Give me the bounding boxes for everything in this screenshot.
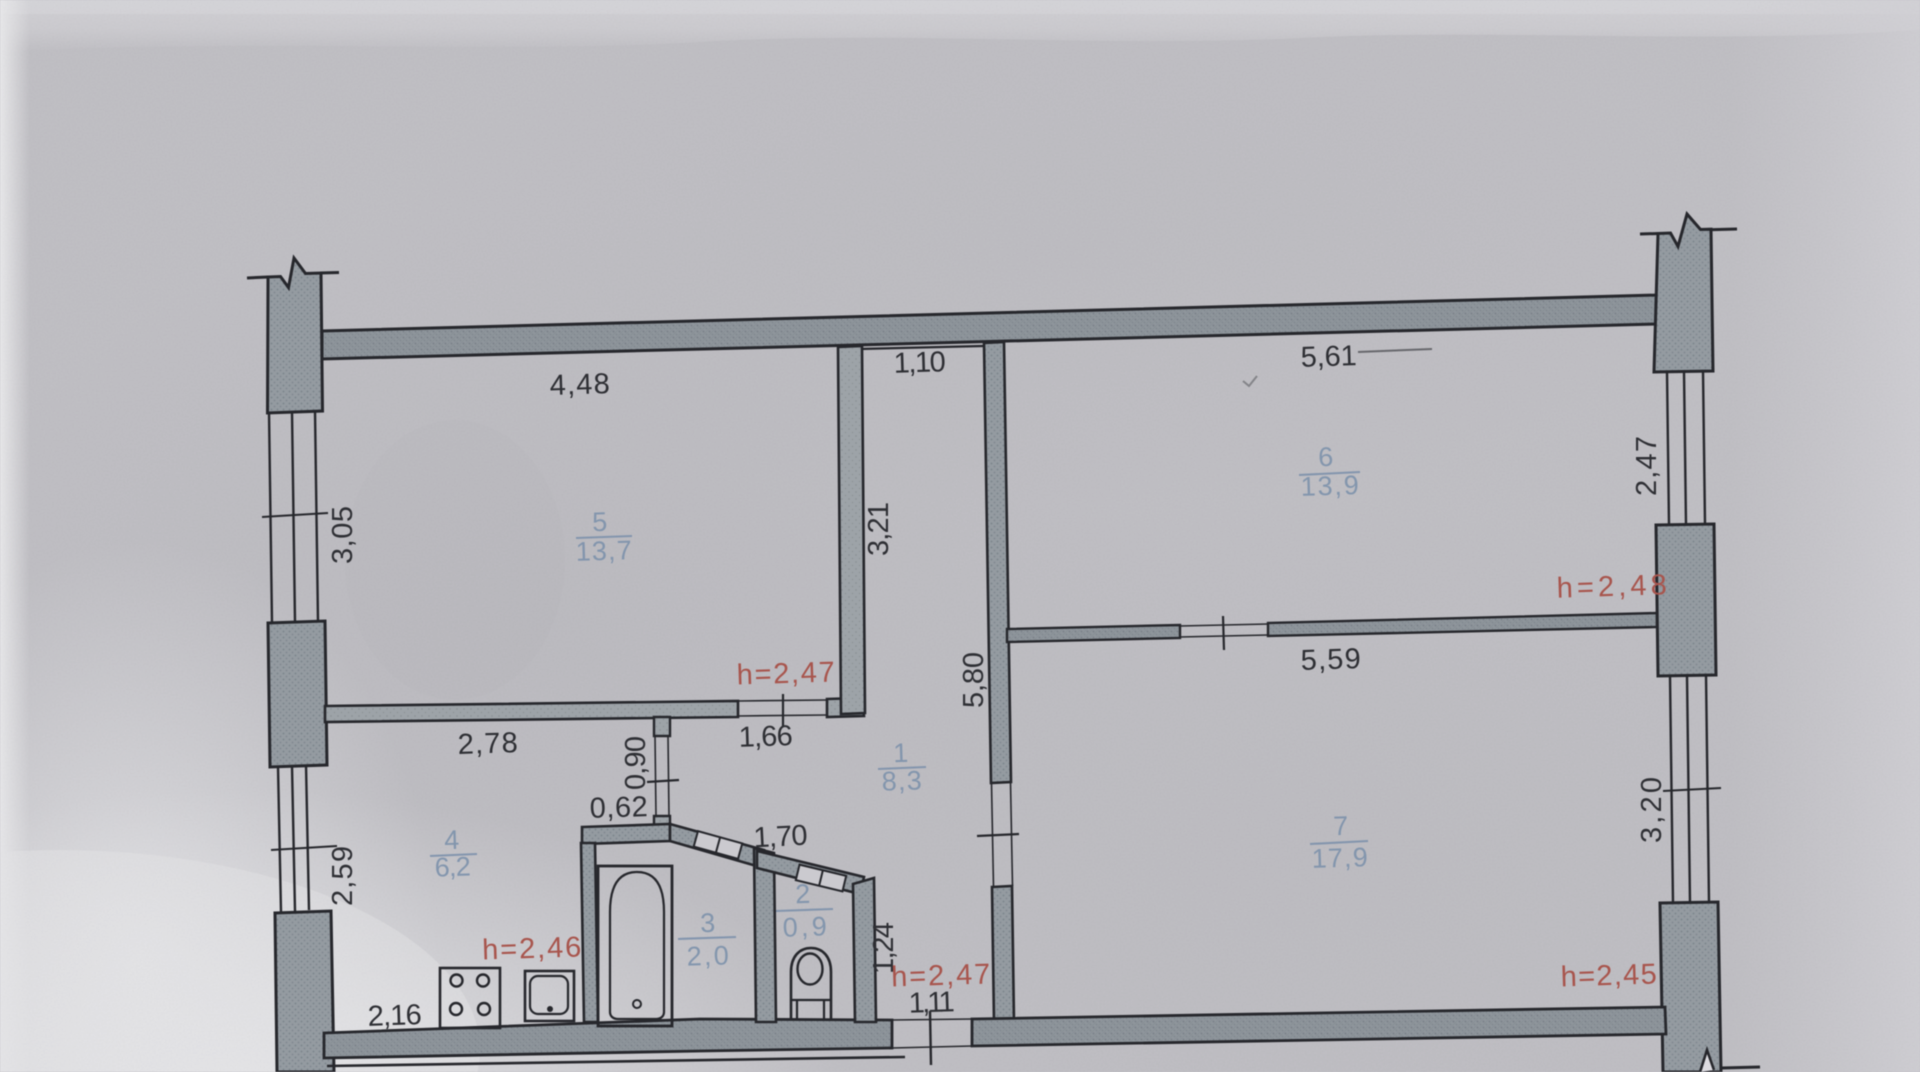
svg-text:2: 2 (795, 879, 811, 909)
svg-text:4: 4 (444, 825, 460, 855)
svg-text:3,05: 3,05 (327, 506, 359, 564)
svg-text:2,59: 2,59 (327, 846, 359, 906)
svg-text:0,62: 0,62 (589, 791, 648, 825)
svg-text:1,70: 1,70 (753, 820, 809, 855)
svg-text:2,0: 2,0 (686, 940, 729, 971)
svg-text:1: 1 (893, 738, 909, 768)
svg-text:5,80: 5,80 (958, 652, 990, 708)
svg-text:1,66: 1,66 (738, 720, 793, 754)
svg-text:4,48: 4,48 (549, 368, 610, 402)
svg-text:3: 3 (700, 908, 716, 938)
svg-text:h=2,46: h=2,46 (482, 931, 582, 966)
svg-text:2,47: 2,47 (1631, 436, 1663, 496)
svg-text:3,20: 3,20 (1636, 777, 1668, 843)
svg-text:0,9: 0,9 (782, 911, 827, 942)
svg-text:13,7: 13,7 (575, 535, 632, 567)
svg-text:1,10: 1,10 (893, 346, 946, 380)
svg-text:17,9: 17,9 (1311, 842, 1368, 874)
svg-text:5,61: 5,61 (1300, 340, 1357, 374)
svg-text:h=2,47: h=2,47 (891, 958, 991, 993)
svg-text:2,16: 2,16 (367, 999, 422, 1033)
svg-text:6: 6 (1318, 442, 1334, 472)
svg-text:2,78: 2,78 (457, 727, 518, 761)
svg-text:3,21: 3,21 (863, 502, 895, 556)
svg-text:5: 5 (592, 507, 608, 537)
svg-text:0,90: 0,90 (620, 736, 652, 790)
svg-text:h=2,45: h=2,45 (1560, 959, 1657, 994)
svg-text:7: 7 (1333, 811, 1349, 841)
svg-text:5,59: 5,59 (1300, 643, 1361, 677)
svg-text:h=2,47: h=2,47 (736, 656, 835, 691)
svg-text:8,3: 8,3 (881, 765, 922, 796)
